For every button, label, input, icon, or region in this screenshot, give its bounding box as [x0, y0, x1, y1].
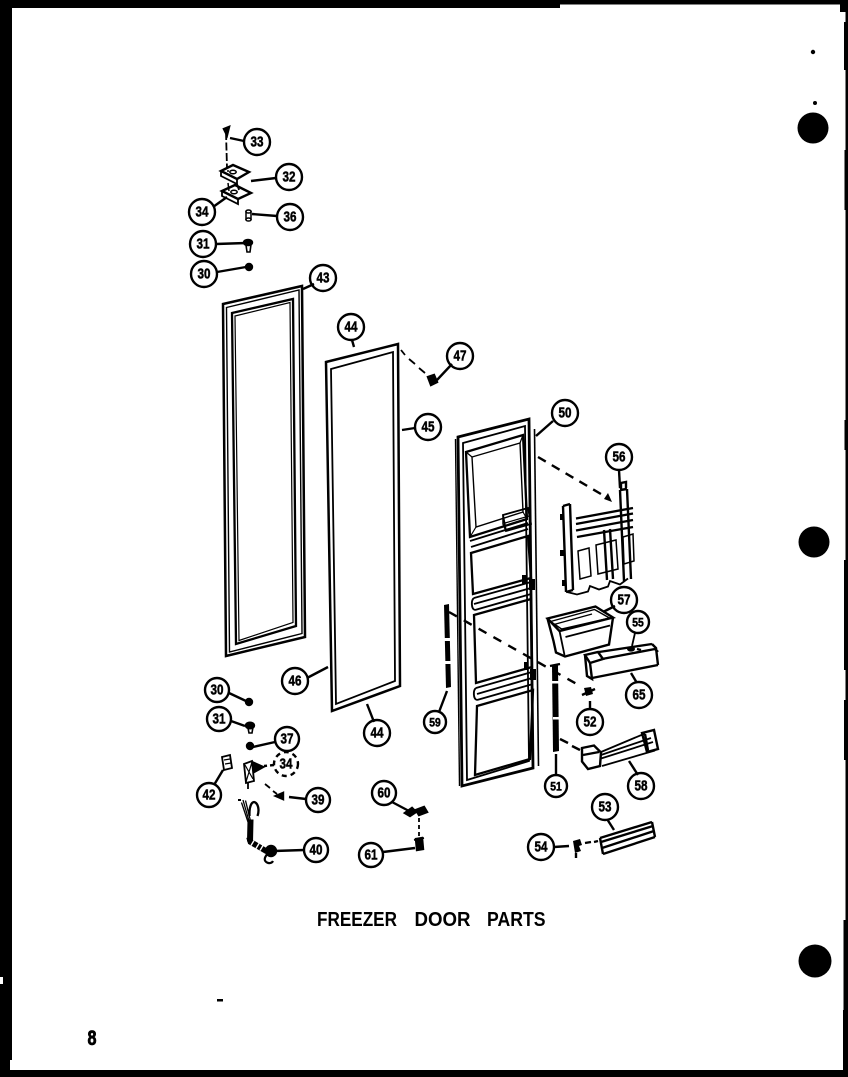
svg-text:30: 30: [211, 682, 224, 699]
svg-text:46: 46: [289, 673, 302, 690]
svg-text:53: 53: [599, 799, 612, 816]
svg-text:59: 59: [429, 716, 441, 730]
svg-text:32: 32: [283, 169, 296, 186]
svg-text:31: 31: [213, 711, 226, 728]
svg-text:58: 58: [635, 778, 648, 795]
svg-text:47: 47: [454, 348, 467, 365]
svg-text:60: 60: [378, 785, 391, 802]
svg-text:36: 36: [284, 209, 297, 226]
svg-text:34: 34: [280, 756, 294, 773]
svg-text:55: 55: [632, 616, 644, 630]
svg-text:54: 54: [535, 839, 549, 856]
svg-text:65: 65: [633, 687, 646, 704]
svg-text:37: 37: [281, 731, 294, 748]
svg-text:43: 43: [317, 270, 330, 287]
svg-text:42: 42: [203, 787, 216, 804]
svg-text:39: 39: [312, 792, 325, 809]
svg-text:56: 56: [613, 449, 626, 466]
svg-text:51: 51: [550, 780, 562, 794]
svg-text:57: 57: [618, 592, 631, 609]
svg-text:44: 44: [371, 725, 385, 742]
svg-text:DOOR: DOOR: [415, 909, 472, 931]
svg-text:50: 50: [559, 405, 572, 422]
svg-text:PARTS: PARTS: [487, 909, 546, 931]
svg-text:52: 52: [584, 714, 597, 731]
svg-text:FREEZER: FREEZER: [317, 909, 397, 931]
svg-text:8: 8: [88, 1027, 97, 1050]
svg-text:31: 31: [197, 236, 210, 253]
svg-text:40: 40: [310, 842, 323, 859]
svg-text:33: 33: [251, 134, 264, 151]
svg-text:30: 30: [198, 266, 211, 283]
svg-text:61: 61: [365, 847, 378, 864]
svg-text:45: 45: [422, 419, 435, 436]
svg-text:34: 34: [196, 204, 210, 221]
svg-text:44: 44: [345, 319, 359, 336]
